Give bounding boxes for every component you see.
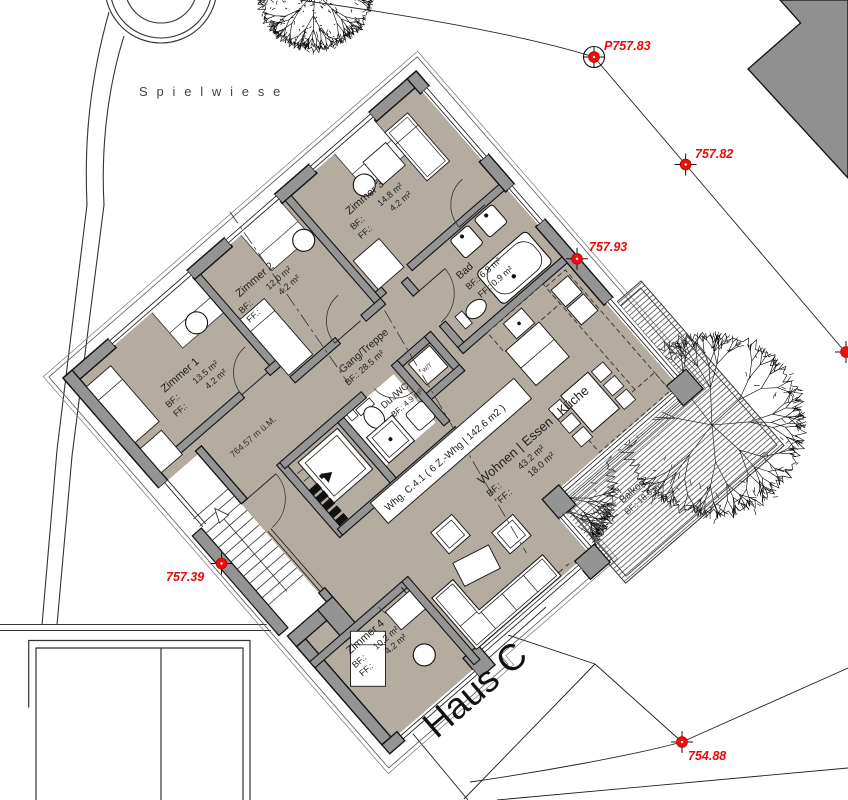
svg-text:P757.83: P757.83 <box>604 39 651 53</box>
svg-text:757.82: 757.82 <box>695 147 733 161</box>
svg-text:757.93: 757.93 <box>589 240 627 254</box>
svg-text:Spielwiese: Spielwiese <box>139 84 289 99</box>
svg-text:754.88: 754.88 <box>688 749 726 763</box>
svg-text:757.39: 757.39 <box>166 570 204 584</box>
